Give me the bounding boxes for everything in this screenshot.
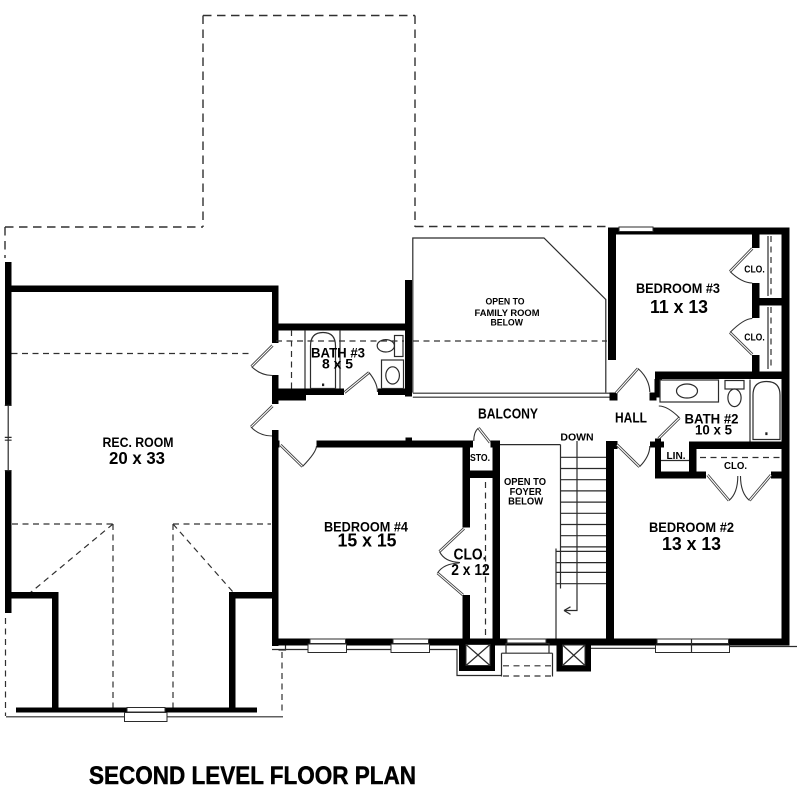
svg-text:13 x 13: 13 x 13 [662, 534, 721, 554]
svg-text:HALL: HALL [615, 410, 647, 427]
svg-text:OPEN TO: OPEN TO [486, 297, 525, 308]
svg-text:BEDROOM #2: BEDROOM #2 [649, 520, 734, 535]
svg-text:CLO.: CLO. [744, 332, 765, 344]
svg-text:CLO.: CLO. [724, 460, 747, 472]
svg-text:STO.: STO. [470, 452, 490, 464]
svg-text:2 x 12: 2 x 12 [451, 562, 490, 579]
svg-text:15 x 15: 15 x 15 [338, 531, 397, 551]
svg-text:LIN.: LIN. [667, 451, 686, 462]
svg-text:20 x 33: 20 x 33 [109, 448, 165, 468]
svg-text:8 x 5: 8 x 5 [322, 357, 354, 372]
svg-text:BELOW: BELOW [490, 318, 523, 329]
svg-text:11 x 13: 11 x 13 [650, 297, 708, 317]
svg-text:BALCONY: BALCONY [478, 406, 538, 423]
svg-text:BEDROOM #3: BEDROOM #3 [636, 281, 720, 296]
svg-text:BELOW: BELOW [508, 496, 543, 508]
svg-text:SECOND LEVEL FLOOR PLAN: SECOND LEVEL FLOOR PLAN [89, 762, 416, 790]
svg-text:CLO.: CLO. [744, 264, 765, 276]
svg-text:10 x 5: 10 x 5 [695, 423, 732, 438]
